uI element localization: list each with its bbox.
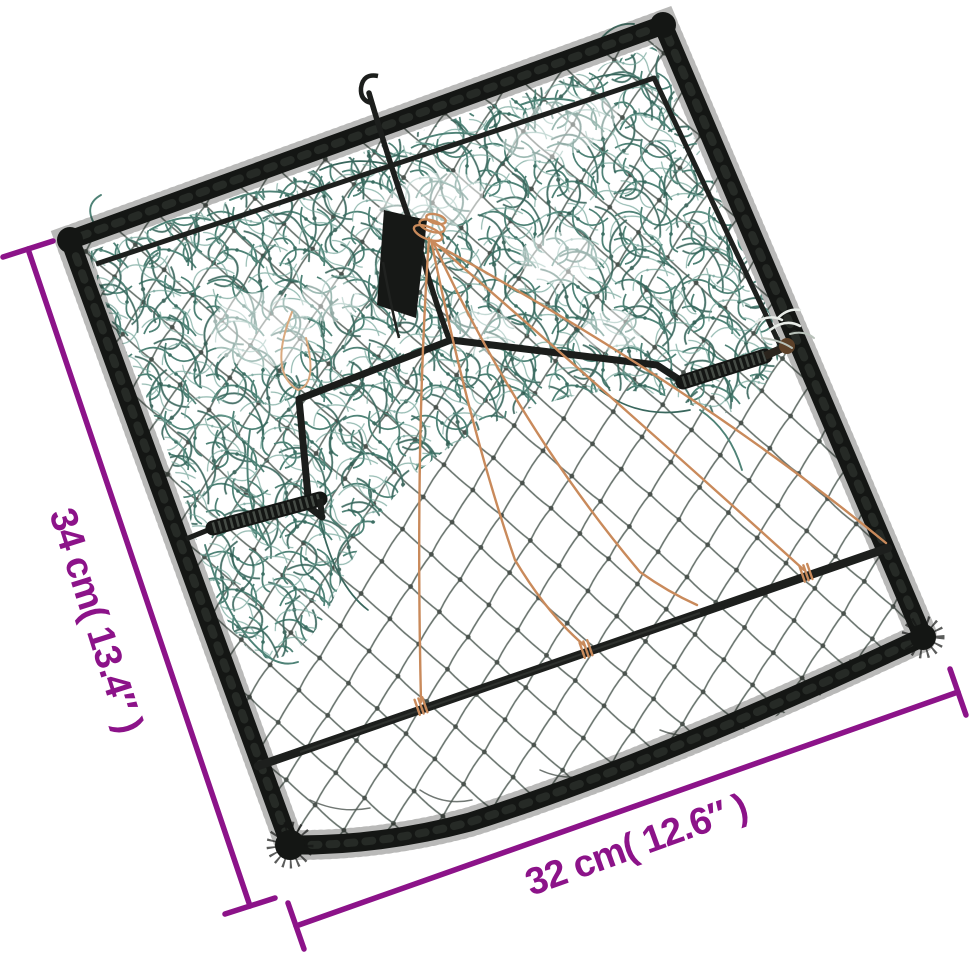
- trap-illustration: 34 cm( 13.4″ ) 32 cm( 12.6″ ): [0, 0, 970, 971]
- product-photo-bird-trap: 34 cm( 13.4″ ) 32 cm( 12.6″ ): [0, 0, 970, 971]
- height-dimension-label: 34 cm( 13.4″ ): [41, 503, 151, 737]
